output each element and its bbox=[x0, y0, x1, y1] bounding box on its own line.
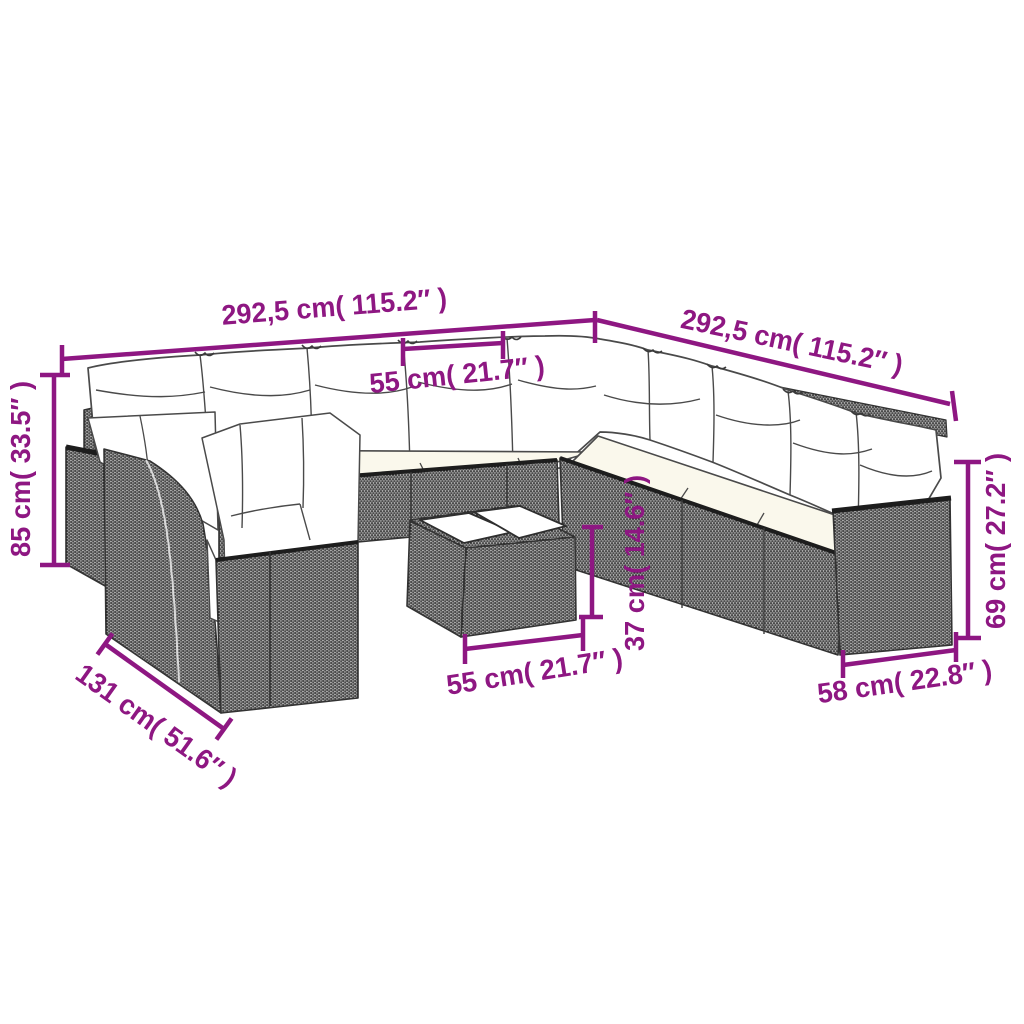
svg-text:37 cm( 14.6″ ): 37 cm( 14.6″ ) bbox=[619, 475, 650, 651]
svg-text:85 cm( 33.5″ ): 85 cm( 33.5″ ) bbox=[5, 381, 36, 557]
svg-text:69 cm( 27.2″ ): 69 cm( 27.2″ ) bbox=[980, 453, 1011, 629]
